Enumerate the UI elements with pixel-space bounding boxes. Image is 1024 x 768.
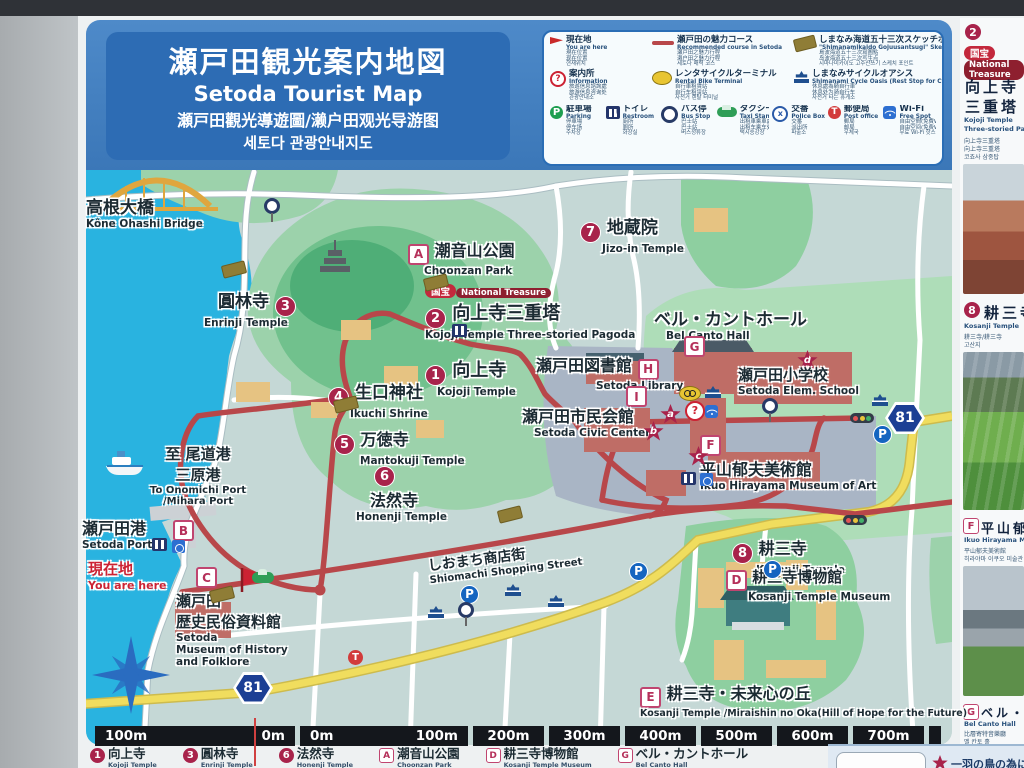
wheelchair-icon [700,473,713,486]
information-icon [550,71,566,87]
tourist-map-sign: 瀬戸田観光案内地図 Setoda Tourist Map 瀬戸田觀光導遊圖/濑户… [0,0,1024,768]
legend-main: 現在地 You are here 現在位置 现在位置 현재위치 瀬戸田の魅力 [550,36,936,104]
information-icon [685,401,705,421]
label-you-are-here: 現在地 You are here [88,558,167,592]
bus-stop-icon [264,198,280,214]
post-office-icon [828,106,841,119]
traffic-light-icon [843,515,867,525]
taxi-icon [717,107,737,117]
label-to-ports: 至 尾道港 三原港 To Onomichi Port /Mihara Port [150,443,246,507]
wheelchair-icon [172,540,185,553]
parking-icon [460,585,479,604]
course-line-icon [652,41,674,45]
legend-item: 駐車場 Parking 停車場 停车场 주차장 [550,105,603,137]
parking-icon [629,562,648,581]
label-honenji: 6 法然寺 Honenji Temple [344,462,447,523]
scale-box: 700m [853,726,924,746]
scale-label: 0m [262,728,285,744]
scale-box: 500m [701,726,772,746]
badge-B: B [173,520,194,541]
badge-F: F [700,435,721,456]
footer-index: 1 向上寺 Kojoji Temple 3 圓林寺 Enrinji Temple [90,748,830,768]
legend-item: 郵便局 Post office 郵局 邮局 우체국 [828,105,881,137]
badge-2: 2 [425,308,446,329]
legend-item: Wi-Fi Free Spot 自由空間(免費Wi-Fi) 自由空间(免费Wi-… [883,105,936,137]
badge-A: A [408,244,429,265]
badge-H: H [638,359,659,380]
legend-label-jp: しまなみ海道五十三次スケッチポイント [819,36,944,45]
legend-label-jp: レンタサイクルターミナル [675,70,777,79]
restroom-icon [452,324,467,337]
badge-D: D [726,570,747,591]
wifi-icon [705,405,718,418]
scale-box: 200m [473,726,544,746]
star-note-strip: 一羽の鳥の為に [828,744,1024,768]
map-title-en: Setoda Tourist Map [106,82,510,106]
badge-1: 1 [425,365,446,386]
cycle-oasis-icon [794,71,809,83]
bus-stop-icon [661,106,678,123]
map-title-jp: 瀬戸田観光案内地図 [106,39,510,81]
label-enrinji: 圓林寺 3 Enrinji Temple [218,287,296,329]
label-mantokuji: 5 万徳寺 Mantokuji Temple [334,426,465,467]
photo-pagoda [963,164,1024,294]
footer-item: 6 法然寺 Honenji Temple [279,748,353,768]
scale-boxes: 200m300m400m500m600m700m [473,726,924,746]
scale-box: 600m [777,726,848,746]
restroom-icon [681,472,696,485]
you-are-here-icon [550,37,563,50]
scale-box: 300m [549,726,620,746]
wall-top-strip [0,0,1024,16]
badge-2: 2 [965,24,981,40]
legend-item: バス停 Bus Stop 巴士站 巴士站 버스정류장 [661,105,714,137]
map-title-ko: 세토다 관광안내지도 [106,132,510,153]
legend-item: 交番 Police Box 交番 派出所 파출소 [772,105,825,137]
legend-label-jp: しまなみサイクルオアシス [812,70,944,79]
legend-item: タクシー Taxi Stand 出租車乘車處 出租车乘车处 택시승강장 [717,105,770,137]
legend-item: トイレ Restroom 廁所 厕所 화장실 [606,105,659,137]
rental-bike-icon [652,71,672,85]
badge-C: C [196,567,217,588]
footer-item: A 潮音山公園 Choonzan Park [379,748,460,768]
bus-stop-icon [762,398,778,414]
rental-bike-icon [679,386,701,401]
restroom-icon [152,538,167,551]
badge-E: E [640,687,661,708]
parking-icon [550,106,563,119]
label-setoda-port: 瀬戸田港 Setoda Port [82,515,152,551]
photo-tea-garden [963,352,1024,510]
label-jizoin: 7 地蔵院 Jizo-in Temple [580,213,684,255]
footer-item: G ベル・カントホール Bel Canto Hall [618,748,749,768]
parking-icon [763,560,782,579]
legend-item: 現在地 You are here 現在位置 现在位置 현재위치 [550,36,648,68]
label-hirayama-museum: F 平山郁夫美術館 Ikuo Hirayama Museum of Art [700,432,876,492]
taxi-icon [252,572,274,583]
bus-stop-icon [458,602,474,618]
wifi-icon [883,106,896,119]
title-block: 瀬戸田観光案内地図 Setoda Tourist Map 瀬戸田觀光導遊圖/濑户… [106,32,510,160]
badge-3: 3 [275,296,296,317]
label-history-museum: 瀬戸田 歴史民俗資料館 Setoda Museum of History and… [176,590,288,668]
sidebar-highlights: 2 国宝 National Treasure 向上寺 三重塔 Kojoji Te… [960,18,1024,744]
star-icon [932,755,948,768]
scale-label: 100m [105,728,147,744]
label-bel-canto-hall: ベル・カントホール Bel Canto Hall [654,305,807,342]
footer-item: D 耕三寺博物館 Kosanji Temple Museum [486,748,592,768]
scale-box: 400m [625,726,696,746]
badge-8: 8 [732,543,753,564]
label-civic-center: 瀬戸田市民会館 Setoda Civic Center [522,403,650,439]
parking-icon [873,425,892,444]
post-office-icon [348,650,363,665]
label-choonzan-park: A 潮音山公園 Choonzan Park [408,237,515,277]
badge-F: F [963,518,979,534]
badge-G: G [684,336,705,357]
legend-label-jp: 現在地 [566,36,607,45]
legend-item: しまなみ海道五十三次スケッチポイント "Shimanamikaido Gojuu… [794,36,944,68]
photo-museum [963,566,1024,696]
note-box [836,752,926,768]
label-kosanji-museum: D 耕三寺博物館 Kosanji Temple Museum [726,566,890,603]
label-setoda-library: 瀬戸田図書館 H Setoda Library [536,352,683,392]
legend-item: しまなみサイクルオアシス Shimanami Cycle Oasis (Rest… [794,70,944,102]
label-setoda-school: 瀬戸田小学校 Setoda Elem. School [738,364,859,397]
legend-item: 案内所 Information 旅遊信息諮詢處 旅游信息咨询处 관광안내소 [550,70,648,102]
wall-left-strip [0,16,78,768]
scale-label: 100m [416,728,458,744]
police-box-icon [772,106,788,122]
legend: 現在地 You are here 現在位置 现在位置 현재위치 瀬戸田の魅力 [542,30,944,166]
scale-label: 0m [310,728,333,744]
national-treasure-badge-jp: 国宝 [964,46,995,60]
legend-item: レンタサイクルターミナル Rental Bike Terminal 自行車租賃站… [652,70,790,102]
badge-8: 8 [964,302,980,318]
scale-bar: 100m 0m 0m 100m 200m300m400m500m600m700m [95,726,955,746]
sketch-point-icon [793,35,817,53]
restroom-icon [606,106,620,119]
label-kone-ohashi-bridge: 高根大橋 Kône Ohashi Bridge [86,193,203,230]
map-title-zh: 瀬戸田觀光導遊圖/濑户田观光导游图 [106,107,510,131]
label-miraishin-no-oka: E 耕三寺・未来心の丘 Kosanji Temple /Miraishin no… [640,680,967,719]
label-kojoji-temple: 1 向上寺 Kojoji Temple [425,356,516,398]
badge-7: 7 [580,222,601,243]
legend-label-jp: 瀬戸田の魅力コース [677,36,782,45]
national-treasure-badge-en: National Treasure [456,288,551,298]
legend-item: 瀬戸田の魅力コース Recommended course in Setoda 瀬… [652,36,790,68]
legend-label-jp: 案内所 [569,70,607,79]
star-note: 一羽の鳥の為に [932,755,1024,768]
badge-5: 5 [334,434,355,455]
footer-item: 3 圓林寺 Enrinji Temple [183,748,253,768]
traffic-light-icon [850,413,874,423]
legend-small: 駐車場 Parking 停車場 停车场 주차장 トイレ [550,105,936,139]
footer-item: 1 向上寺 Kojoji Temple [90,748,157,768]
badge-6: 6 [374,466,395,487]
